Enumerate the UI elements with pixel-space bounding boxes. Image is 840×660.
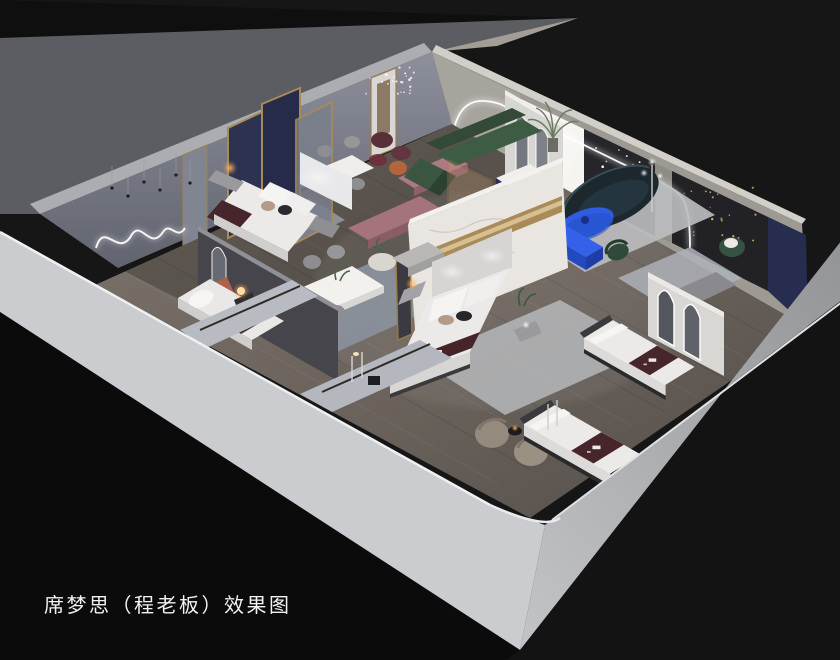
chair (317, 145, 333, 157)
sparkle-dot (381, 81, 383, 83)
interior-rendering (0, 0, 840, 660)
sparkle-dot (721, 234, 723, 236)
sparkle-dot (404, 72, 406, 74)
sparkle-dot (684, 193, 685, 194)
sparkle-dot (690, 190, 692, 192)
plant-pot (548, 138, 558, 152)
sparkle-dot (385, 74, 387, 76)
sparkle-dot (720, 218, 722, 220)
pendant-bulb (142, 180, 145, 183)
tan-pillow (261, 201, 275, 211)
sparkle-dot (618, 149, 620, 151)
sparkle-dot (626, 155, 628, 157)
sparkle-dot (392, 80, 394, 82)
black-box (368, 376, 380, 385)
sparkle-dot (395, 80, 397, 82)
table-lamp (512, 425, 519, 432)
sparkle-dot (752, 187, 754, 189)
globe-lamp (656, 172, 663, 179)
artwork (377, 79, 390, 138)
caption-title: 席梦思（程老板）效果图 (44, 589, 292, 618)
round-table (368, 253, 396, 271)
white-pillow (724, 238, 738, 248)
sparkle-dot (409, 92, 411, 94)
tan-pillow (438, 315, 454, 325)
wicker-chair (475, 420, 509, 448)
globe-lamp (648, 158, 657, 167)
pendant-bulb (174, 173, 177, 176)
chair (303, 255, 321, 269)
sparkle-dot (397, 93, 399, 95)
sparkle-dot (717, 193, 719, 195)
sparkle-dot (409, 67, 411, 69)
sparkle-dot (401, 81, 403, 83)
dark-pillow (456, 311, 472, 321)
sparkle-dot (754, 214, 756, 216)
sparkle-dot (405, 75, 407, 77)
sparkle-dot (413, 71, 415, 73)
sparkle-dot (709, 191, 711, 193)
globe-lamp (640, 169, 648, 177)
lamp-glow (522, 321, 530, 329)
pendant-bulb (110, 186, 113, 189)
pendant-bulb (158, 188, 161, 191)
arch-mirror (658, 291, 674, 346)
arch-mirror (684, 305, 700, 360)
sparkle-dot (710, 207, 711, 208)
sparkle-dot (387, 83, 389, 85)
burgundy-pouf (391, 146, 411, 160)
vase (581, 216, 589, 224)
sparkle-dot (712, 196, 714, 198)
pendant-bulb (126, 194, 129, 197)
rendering-canvas: 席梦思（程老板）效果图 (0, 0, 840, 660)
sparkle-dot (752, 239, 754, 241)
sparkle-dot (736, 187, 738, 189)
sparkle-dot (398, 66, 400, 68)
sparkle-dot (400, 92, 401, 93)
sparkle-dot (705, 191, 707, 193)
orange-chair (389, 161, 407, 175)
sparkle-dot (601, 165, 604, 168)
sparkle-dot (369, 77, 371, 79)
sparkle-dot (365, 93, 367, 95)
sparkle-dot (729, 214, 730, 215)
lamp-tip (353, 352, 359, 356)
chair (344, 136, 360, 148)
dark-pillow (278, 205, 292, 215)
sparkle-dot (639, 161, 641, 163)
headboard-light (296, 166, 340, 190)
sparkle-dot (606, 161, 608, 163)
sparkle-dot (410, 89, 412, 91)
sparkle-dot (403, 92, 405, 94)
chair (327, 245, 345, 259)
burgundy-pouf (371, 132, 393, 148)
headboard-spot (438, 263, 466, 281)
glass-table (369, 154, 387, 166)
pendant-bulb (188, 181, 191, 184)
sparkle-dot (409, 86, 411, 88)
sparkle-dot (711, 218, 713, 220)
sparkle-dot (410, 77, 412, 79)
sparkle-dot (693, 231, 695, 233)
sparkle-dot (693, 234, 695, 236)
lamp-glow (223, 161, 237, 175)
orb-lamp-core (237, 287, 245, 295)
headboard-spot (478, 247, 506, 265)
sparkle-dot (393, 76, 395, 78)
lamp-glow (406, 278, 418, 290)
